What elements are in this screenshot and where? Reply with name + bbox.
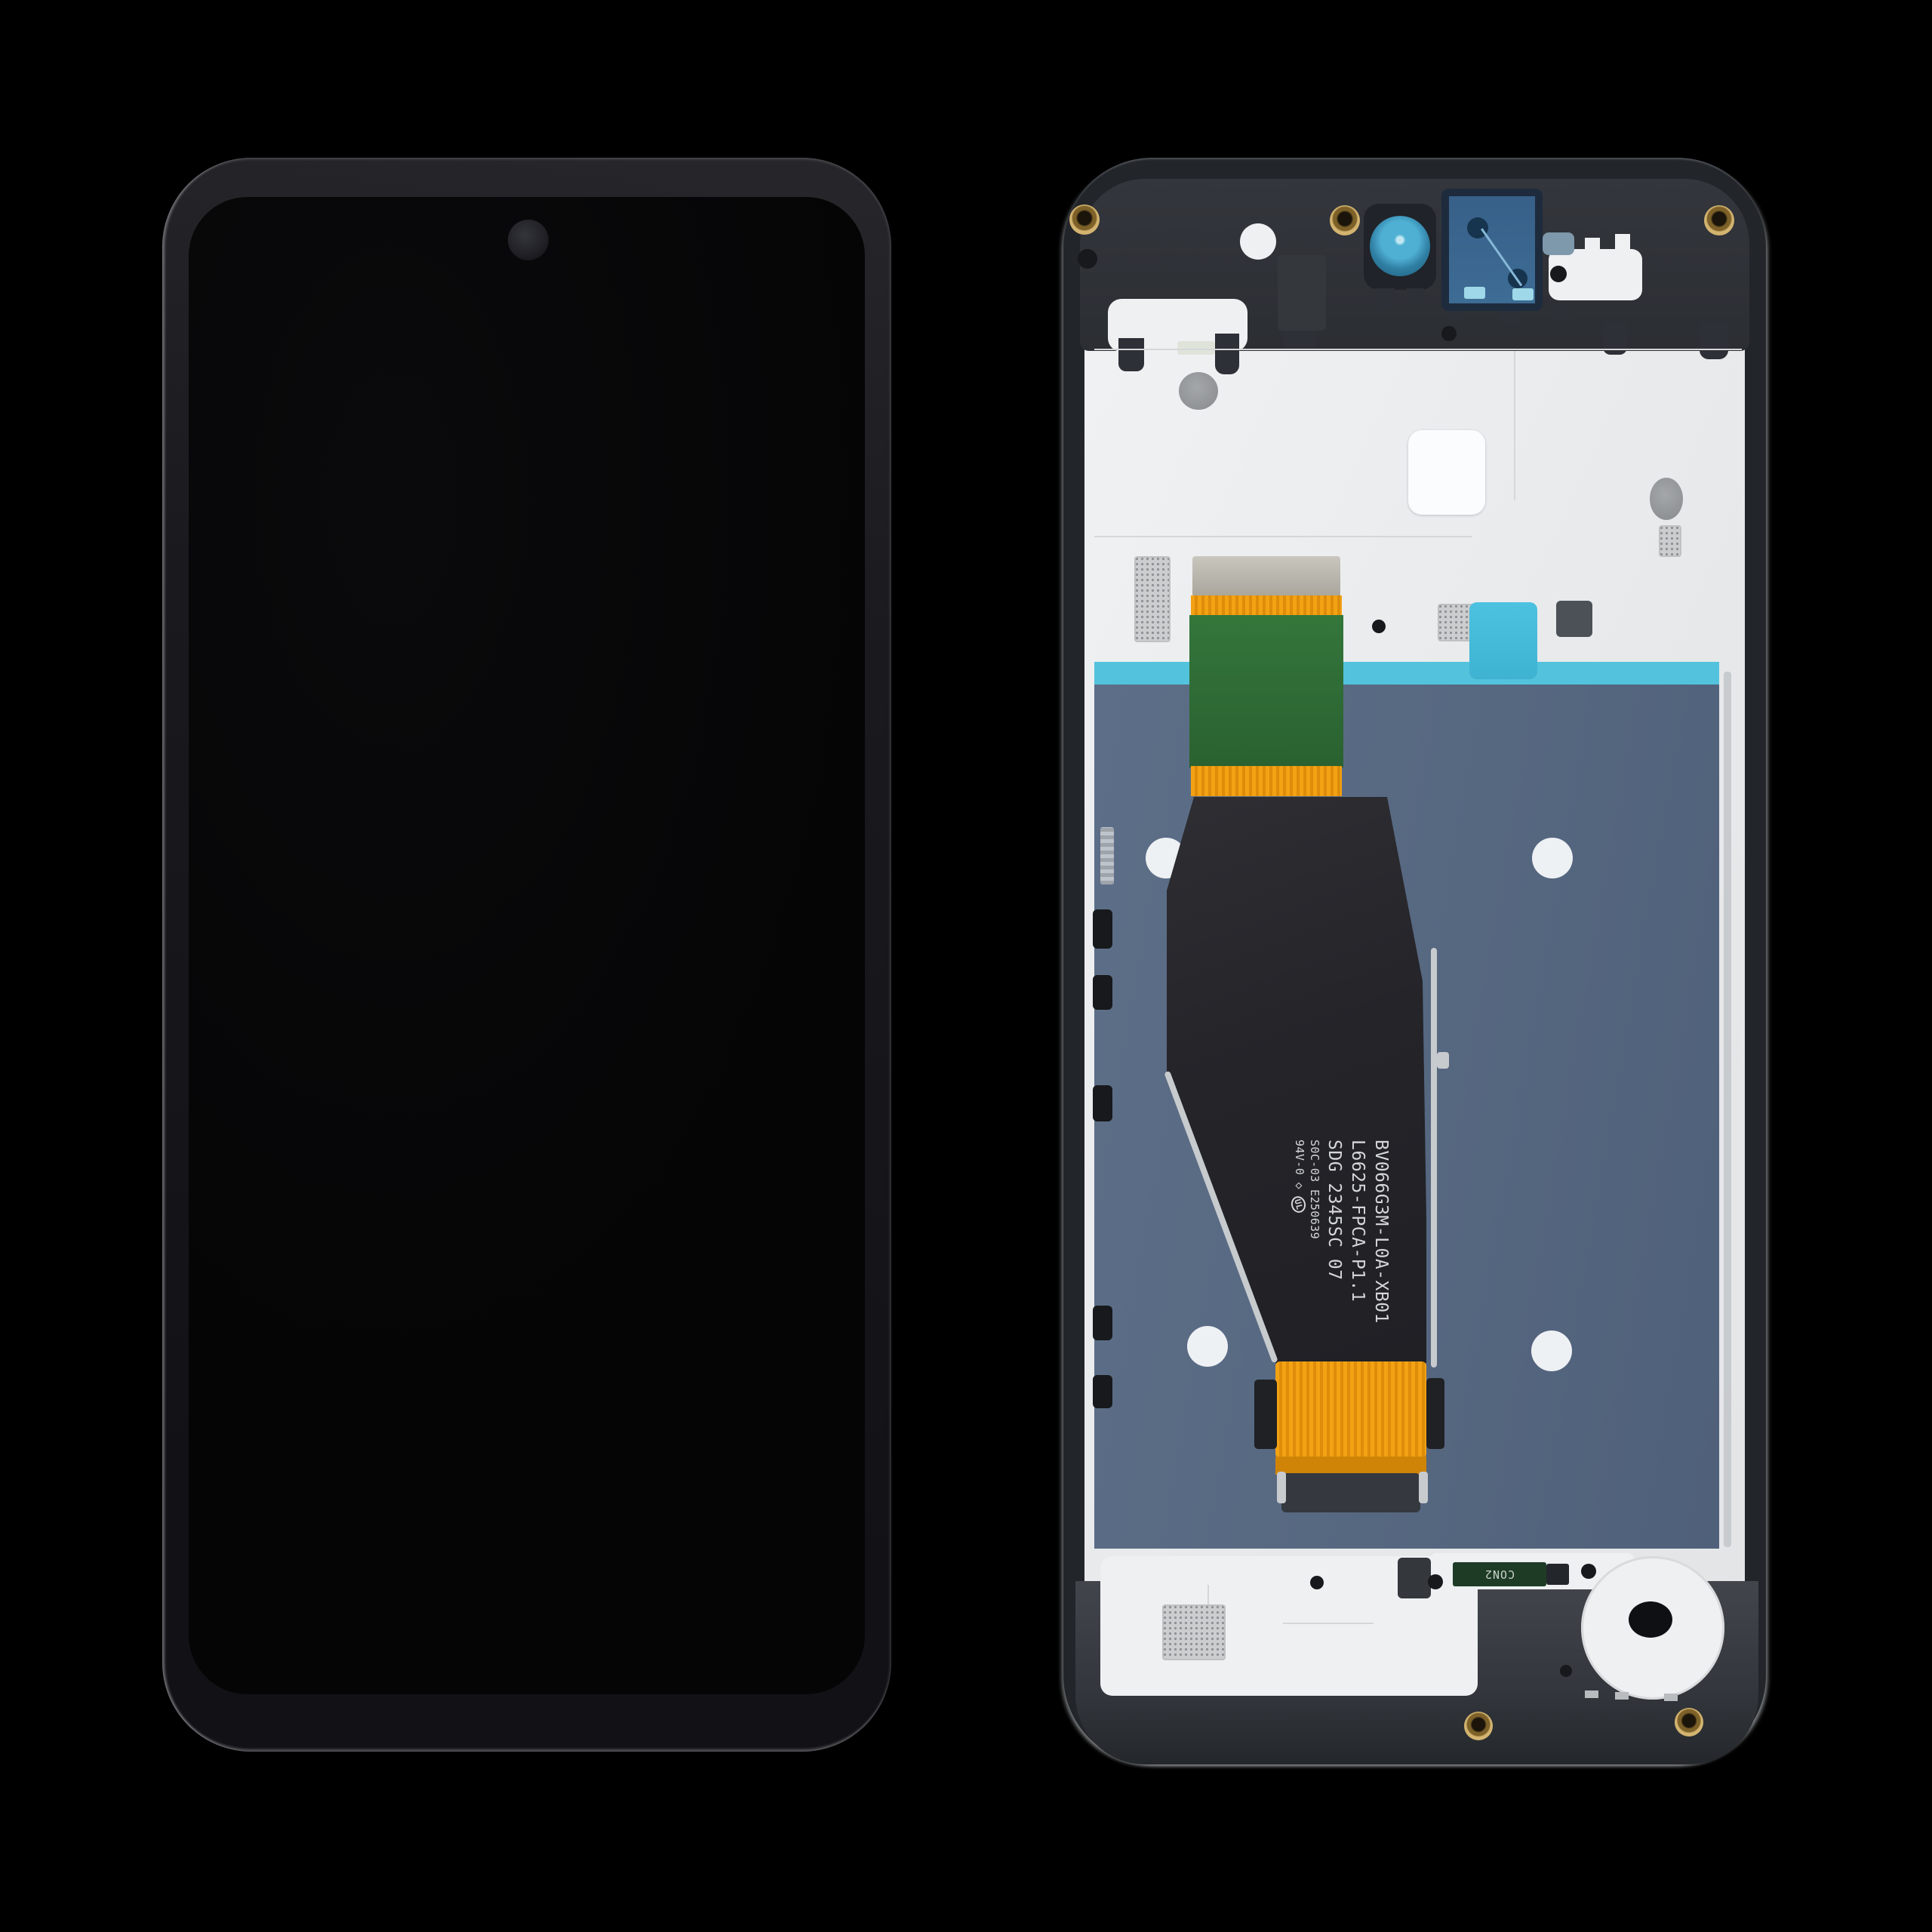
plate-seam [1514, 351, 1515, 500]
band-tooth [1700, 323, 1728, 359]
screw-hole-dark [1581, 1564, 1596, 1579]
screw-hole-dark [1550, 266, 1567, 282]
rail-nub [1437, 1052, 1449, 1069]
earpiece-sensor-window [1441, 189, 1543, 311]
sensor-foot [1553, 309, 1570, 320]
castellation [1615, 234, 1630, 254]
sensor-pad [1512, 288, 1534, 300]
screw-hole-dark [1372, 620, 1386, 633]
con2-dark-end [1546, 1564, 1569, 1585]
panel-dot [1187, 1326, 1228, 1367]
flex-stiffener-silver [1192, 556, 1340, 597]
molding-bracket [1398, 1558, 1431, 1598]
plate-hole-gray [1179, 372, 1218, 410]
mesh-pad [1134, 556, 1171, 642]
connector-tip [1277, 1472, 1286, 1503]
adhesive-pull-tab [1469, 602, 1537, 679]
band-tooth [1283, 330, 1316, 351]
lcd-assembly-product-photo: BV066G3M-L0A-XB01 L6625-FPCA-P1.1 SDG 23… [0, 0, 1932, 1932]
flex-marking-line: 94V-0 ◇ UL [1291, 1140, 1307, 1336]
rail-etch-marks [1100, 827, 1114, 884]
frame-hole [1078, 249, 1097, 269]
sensor-pad [1464, 287, 1485, 299]
mesh-pad [1162, 1604, 1226, 1660]
band-tooth [1118, 338, 1144, 371]
connector-tip [1419, 1472, 1428, 1503]
screw-hole-dark [1560, 1665, 1572, 1677]
rail-cutout [1093, 1085, 1112, 1121]
flex-marking-line: BV066G3M-L0A-XB01 [1369, 1140, 1392, 1336]
screw-gold [1675, 1708, 1703, 1737]
connector-base [1281, 1473, 1420, 1512]
mesh-pad [1659, 525, 1681, 557]
band-tooth [1375, 288, 1395, 308]
screw-gold [1704, 205, 1734, 235]
ul-certification-mark: UL [1290, 1195, 1308, 1214]
flex-marking-line: L6625-FPCA-P1.1 [1346, 1140, 1369, 1336]
con2-board: CON2 [1453, 1562, 1546, 1586]
sensor-line [1481, 228, 1522, 286]
flammability-rating: 94V-0 [1293, 1140, 1306, 1175]
flex-markings: BV066G3M-L0A-XB01 L6625-FPCA-P1.1 SDG 23… [1264, 1140, 1392, 1336]
rail-cutout [1093, 975, 1112, 1010]
plate-seam [1283, 1623, 1374, 1624]
screw-gold [1330, 205, 1360, 235]
sensor-foot [1500, 311, 1520, 323]
flex-orange-band [1191, 595, 1342, 617]
molding-speck [1615, 1692, 1629, 1700]
screw-gold [1464, 1712, 1493, 1740]
screw-hole-dark [1441, 326, 1457, 341]
screw-hole-dark [1310, 1576, 1324, 1589]
round-hole [1240, 223, 1276, 260]
speaker-hole [1629, 1601, 1672, 1638]
adhesive-strip [1094, 662, 1719, 685]
flex-marking-line: S0C-03 E250639 [1307, 1140, 1322, 1336]
flex-marking-line: SDG 2345SC 07 [1322, 1140, 1346, 1336]
ribbon-edge-rail [1431, 948, 1437, 1367]
rail-cutout [1093, 909, 1112, 949]
molding-speck [1664, 1694, 1678, 1701]
plate-hole-gray [1650, 478, 1683, 520]
flex-orange-band [1191, 766, 1342, 796]
con2-label: CON2 [1484, 1567, 1515, 1581]
panel-side-rail [1724, 672, 1731, 1547]
band-tooth [1215, 334, 1239, 374]
plate-seam [1094, 536, 1472, 537]
flex-connector-orange [1275, 1361, 1426, 1458]
sensor-foot [1447, 311, 1463, 321]
screw-hole-dark [1428, 1574, 1443, 1589]
gray-knob [1543, 232, 1574, 255]
band-tooth [1407, 288, 1423, 306]
front-assembly-body [162, 158, 891, 1752]
panel-dot [1531, 1331, 1572, 1371]
camera-cutout-lens [1370, 216, 1430, 276]
castellation [1585, 238, 1600, 260]
diamond-mark: ◇ [1293, 1183, 1306, 1189]
molding-speck [1585, 1690, 1598, 1698]
plate-slot [1556, 601, 1592, 637]
rail-cutout [1093, 1375, 1112, 1408]
sensor-window-dark [1278, 255, 1326, 331]
flex-connector-edge [1275, 1457, 1426, 1475]
front-screen [189, 197, 865, 1694]
screw-gold [1069, 205, 1100, 235]
connector-clip [1254, 1380, 1277, 1449]
plate-seam [1094, 349, 1742, 350]
rail-cutout [1093, 1306, 1112, 1340]
pale-sticker [1177, 341, 1215, 355]
white-sticker [1408, 430, 1485, 515]
flex-green-pcb [1189, 615, 1343, 768]
punch-hole-camera [508, 220, 549, 260]
panel-dot [1532, 838, 1573, 878]
connector-clip [1426, 1378, 1444, 1449]
